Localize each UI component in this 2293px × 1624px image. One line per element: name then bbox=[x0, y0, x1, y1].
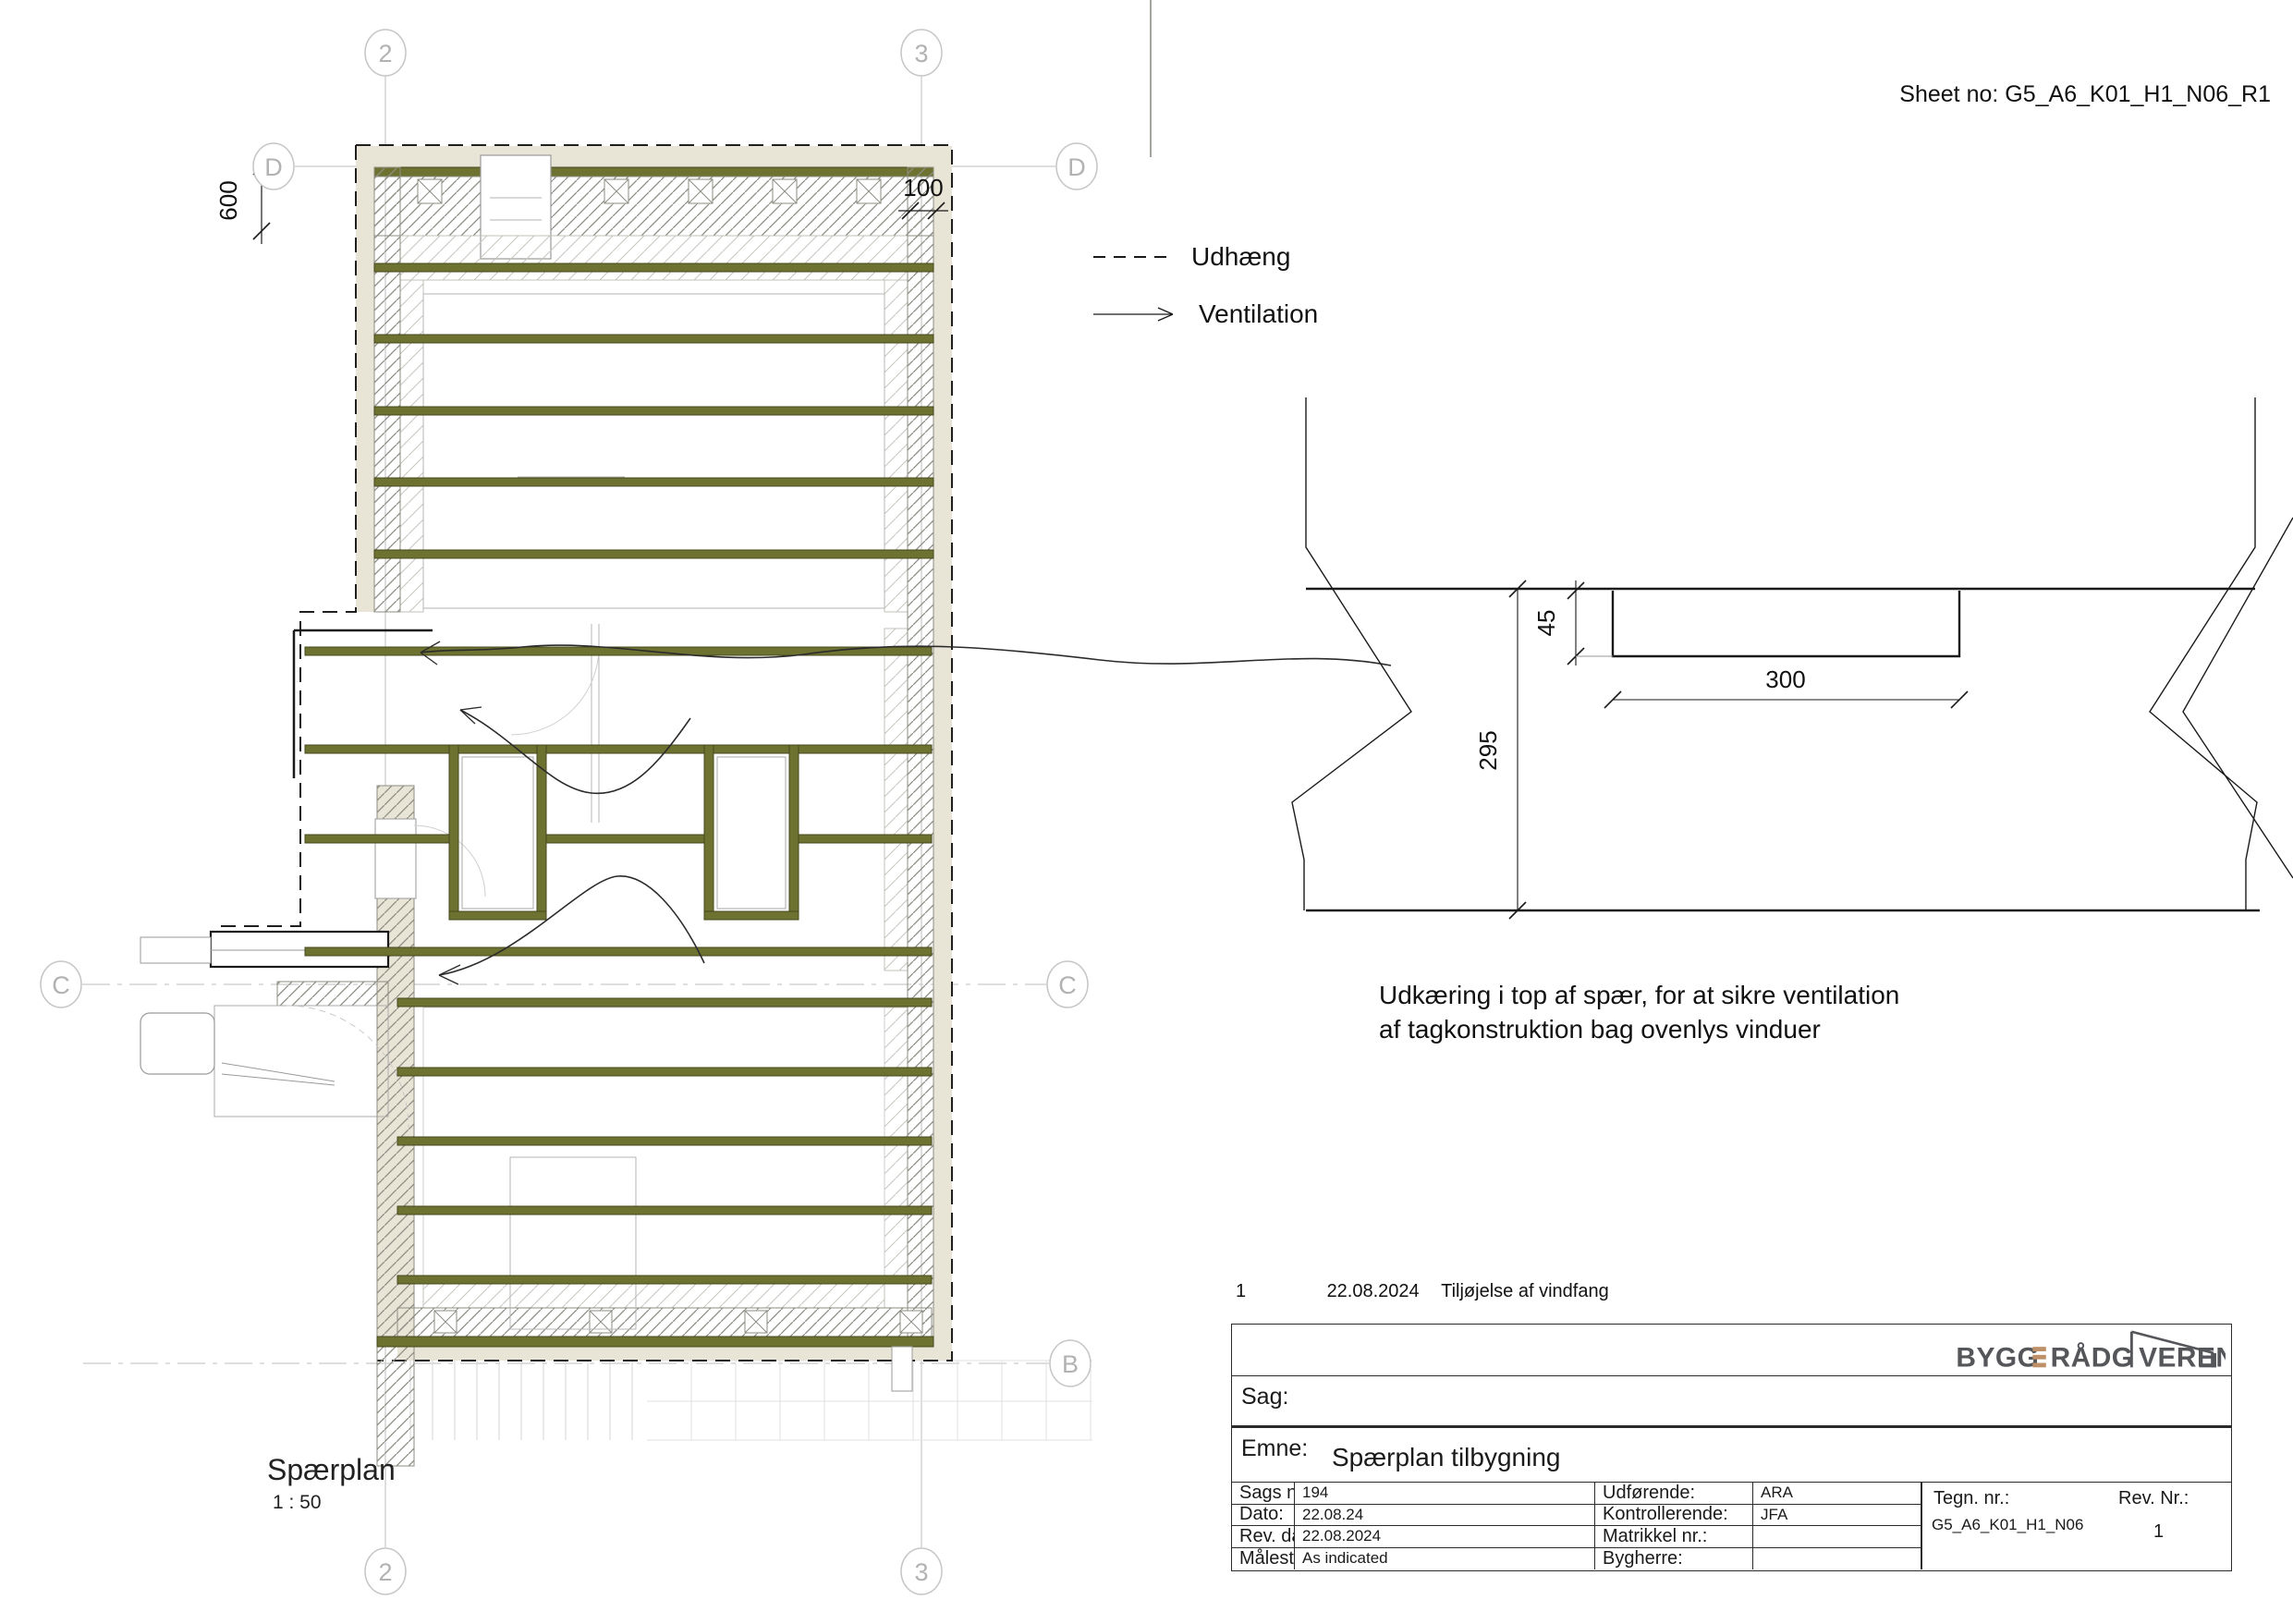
logo-text-part2: RÅDG bbox=[2051, 1342, 2134, 1373]
title-block-emne-row: Emne: Spærplan tilbygning bbox=[1232, 1428, 2231, 1483]
legend-udhaeng-row: Udhæng bbox=[1093, 238, 1318, 275]
detail-note-line1: Udkæring i top af spær, for at sikre ven… bbox=[1379, 978, 1899, 1012]
svg-text:2: 2 bbox=[378, 40, 392, 67]
dato-value: 22.08.24 bbox=[1295, 1505, 1595, 1527]
sheet-number-label: Sheet no: bbox=[1899, 81, 1998, 107]
svg-text:2: 2 bbox=[378, 1558, 392, 1586]
skylight-frames bbox=[449, 745, 799, 920]
rafter-notch-detail bbox=[1292, 397, 2293, 919]
logo-text-part1: BYGG bbox=[1956, 1342, 2039, 1373]
skylight-openings bbox=[462, 757, 786, 909]
legend-ventilation-label: Ventilation bbox=[1199, 299, 1318, 329]
dato-label: Dato: bbox=[1232, 1505, 1295, 1527]
sags-nr-label: Sags nr.: bbox=[1232, 1483, 1295, 1505]
revision-number: 1 bbox=[1236, 1281, 1322, 1302]
maalestok-label: Målestok:A3 bbox=[1232, 1548, 1295, 1570]
matrikkel-label: Matrikkel nr.: bbox=[1595, 1526, 1753, 1548]
bygherre-label: Bygherre: bbox=[1595, 1548, 1753, 1570]
svg-text:3: 3 bbox=[914, 40, 928, 67]
tegn-nr-value: G5_A6_K01_H1_N06 bbox=[1932, 1516, 2083, 1534]
dim-295-text: 295 bbox=[1474, 730, 1502, 770]
dim-100-text: 100 bbox=[903, 174, 943, 201]
title-block-fields: Sags nr.: 194 Udførende: ARA Dato: 22.08… bbox=[1232, 1483, 1921, 1569]
legend-udhaeng-label: Udhæng bbox=[1191, 242, 1290, 272]
view-title-scale: 1 : 50 bbox=[273, 1492, 396, 1514]
kontrollerende-label: Kontrollerende: bbox=[1595, 1505, 1753, 1527]
revision-description: Tiljøjelse af vindfang bbox=[1441, 1281, 1609, 1302]
sag-label: Sag: bbox=[1241, 1384, 1288, 1410]
dim-300-text: 300 bbox=[1765, 665, 1805, 693]
kontrollerende-value: JFA bbox=[1753, 1505, 1921, 1527]
title-block-logo-row: BYGG RÅDG VEREN bbox=[1232, 1325, 2231, 1376]
tegn-nr-label: Tegn. nr.: bbox=[1933, 1488, 2009, 1509]
svg-text:3: 3 bbox=[914, 1558, 928, 1586]
title-block-drawing-number-box: Tegn. nr.: G5_A6_K01_H1_N06 Rev. Nr.: 1 bbox=[1921, 1483, 2231, 1569]
legend: Udhæng Ventilation bbox=[1093, 238, 1318, 353]
company-logo: BYGG RÅDG VEREN bbox=[1956, 1325, 2226, 1380]
svg-text:D: D bbox=[1067, 153, 1086, 181]
logo-e-bars-icon bbox=[2032, 1347, 2045, 1367]
detail-note-line2: af tagkonstruktion bag ovenlys vinduer bbox=[1379, 1012, 1899, 1046]
legend-ventilation-row: Ventilation bbox=[1093, 296, 1318, 333]
svg-text:C: C bbox=[52, 971, 70, 999]
sheet-number-value: G5_A6_K01_H1_N06_R1 bbox=[2005, 81, 2271, 107]
maalestok-value: As indicated bbox=[1295, 1548, 1595, 1570]
emne-label: Emne: bbox=[1241, 1435, 1308, 1462]
bygherre-value bbox=[1753, 1548, 1921, 1570]
title-block: BYGG RÅDG VEREN Sag: bbox=[1231, 1324, 2232, 1571]
dashed-line-symbol bbox=[1093, 253, 1171, 261]
view-title: Spærplan 1 : 50 bbox=[267, 1453, 396, 1514]
udfoerende-label: Udførende: bbox=[1595, 1483, 1753, 1505]
emne-value: Spærplan tilbygning bbox=[1332, 1443, 1561, 1472]
svg-text:C: C bbox=[1058, 971, 1077, 999]
terrace-lines bbox=[410, 1361, 1092, 1440]
title-block-table: Sags nr.: 194 Udførende: ARA Dato: 22.08… bbox=[1232, 1483, 2231, 1569]
revision-row: 1 22.08.2024 Tiljøjelse af vindfang bbox=[1236, 1281, 1609, 1302]
rev-nr-value: 1 bbox=[2153, 1521, 2164, 1543]
rev-dato-value: 22.08.2024 bbox=[1295, 1526, 1595, 1548]
title-block-sag-row: Sag: bbox=[1232, 1376, 2231, 1428]
view-title-name: Spærplan bbox=[267, 1453, 396, 1487]
rev-nr-label: Rev. Nr.: bbox=[2118, 1488, 2189, 1509]
revision-date: 22.08.2024 bbox=[1327, 1281, 1436, 1302]
svg-text:B: B bbox=[1062, 1350, 1079, 1378]
matrikkel-value bbox=[1753, 1526, 1921, 1548]
sags-nr-value: 194 bbox=[1295, 1483, 1595, 1505]
dim-600-text: 600 bbox=[214, 180, 242, 220]
sheet-number: Sheet no: G5_A6_K01_H1_N06_R1 bbox=[1899, 81, 2271, 108]
svg-text:D: D bbox=[264, 153, 283, 181]
vestibule bbox=[140, 932, 409, 1128]
detail-note: Udkæring i top af spær, for at sikre ven… bbox=[1379, 978, 1899, 1046]
interior-lines bbox=[414, 294, 884, 1329]
dim-45-text: 45 bbox=[1532, 610, 1560, 637]
rev-dato-label: Rev. dato: bbox=[1232, 1526, 1295, 1548]
udfoerende-value: ARA bbox=[1753, 1483, 1921, 1505]
ventilation-arrow-symbol bbox=[1093, 305, 1178, 324]
drawing-sheet: 600 100 2 3 D D C C B 2 3 bbox=[0, 0, 2293, 1624]
